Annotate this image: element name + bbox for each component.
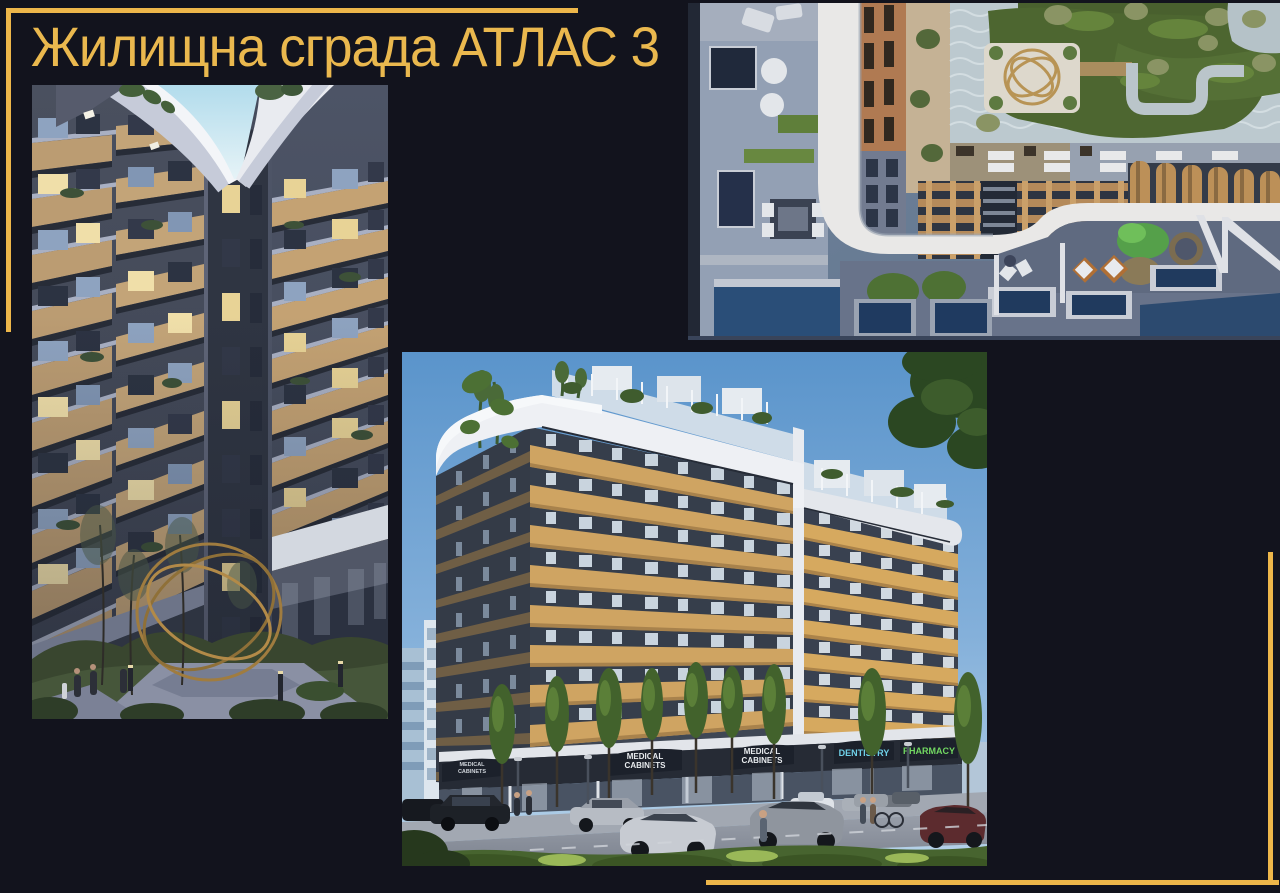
svg-text:MEDICAL: MEDICAL bbox=[459, 762, 485, 768]
svg-text:PHARMACY: PHARMACY bbox=[903, 746, 955, 756]
svg-text:CABINETS: CABINETS bbox=[625, 761, 667, 770]
svg-text:CABINETS: CABINETS bbox=[458, 769, 486, 775]
svg-text:MEDICAL: MEDICAL bbox=[627, 752, 664, 761]
svg-text:DENTISTRY: DENTISTRY bbox=[839, 748, 890, 758]
svg-text:CABINETS: CABINETS bbox=[742, 756, 784, 765]
